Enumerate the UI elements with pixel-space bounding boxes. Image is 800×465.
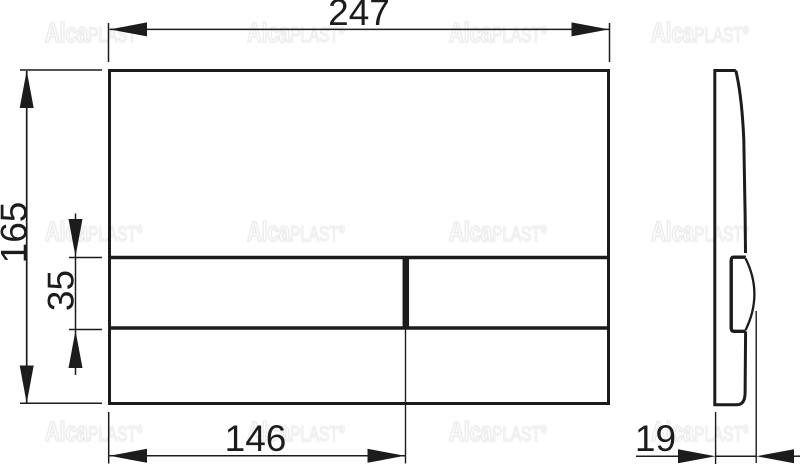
svg-text:19: 19 [635, 418, 676, 459]
svg-text:247: 247 [328, 0, 390, 33]
svg-text:146: 146 [225, 418, 287, 459]
svg-text:165: 165 [0, 202, 35, 264]
svg-text:35: 35 [41, 270, 82, 311]
